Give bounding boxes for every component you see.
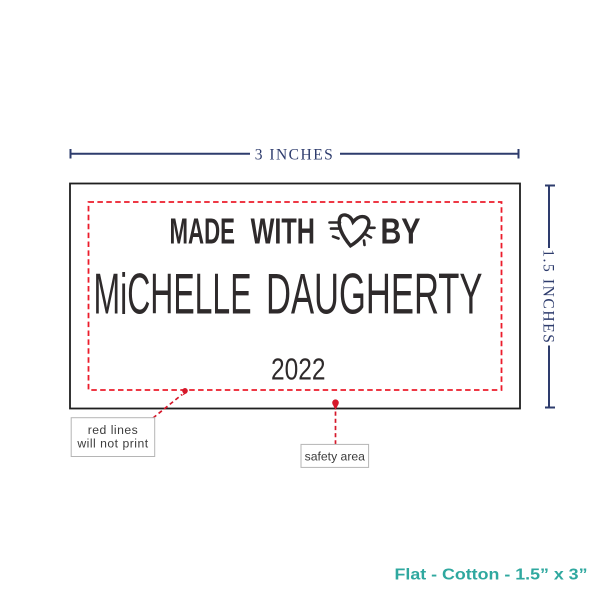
svg-text:3 INCHES: 3 INCHES <box>255 147 335 164</box>
svg-text:DAUGHERTY: DAUGHERTY <box>266 263 483 327</box>
svg-text:2022: 2022 <box>271 351 326 386</box>
svg-text:will not print: will not print <box>76 437 148 451</box>
svg-text:red lines: red lines <box>88 423 139 437</box>
svg-text:BY: BY <box>381 211 421 252</box>
svg-text:MiCHELLE: MiCHELLE <box>94 263 252 327</box>
svg-text:1.5 INCHES: 1.5 INCHES <box>540 249 557 344</box>
svg-text:safety area: safety area <box>305 449 366 463</box>
svg-text:MADE: MADE <box>170 211 236 252</box>
svg-text:WITH: WITH <box>251 211 315 252</box>
svg-text:Flat - Cotton - 1.5” x 3”: Flat - Cotton - 1.5” x 3” <box>395 567 588 584</box>
